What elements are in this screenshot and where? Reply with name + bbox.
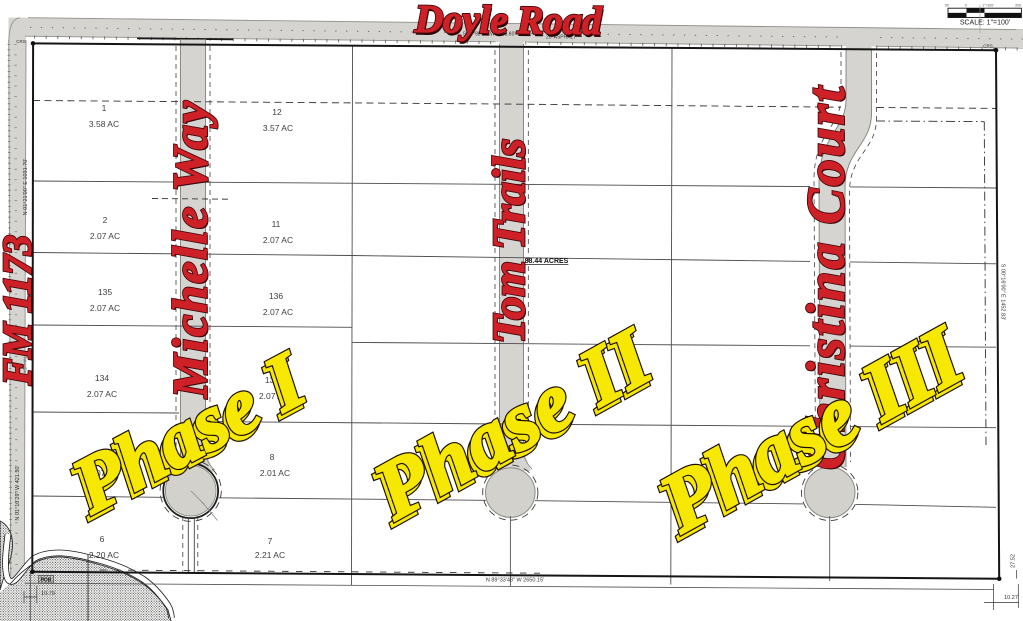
svg-text:3.57 AC: 3.57 AC <box>263 123 293 133</box>
svg-text:FM 1173: FM 1173 <box>0 235 40 386</box>
svg-text:2.20 AC: 2.20 AC <box>89 550 119 560</box>
svg-text:3.58 AC: 3.58 AC <box>89 119 119 129</box>
svg-text:134: 134 <box>95 373 109 383</box>
svg-text:136: 136 <box>269 291 283 301</box>
svg-text:2.07 AC: 2.07 AC <box>90 303 120 313</box>
svg-text:CRS: CRS <box>16 39 26 44</box>
svg-text:N 01°10'29" W 421.50': N 01°10'29" W 421.50' <box>15 465 21 520</box>
svg-text:Tom Trails: Tom Trails <box>483 139 534 344</box>
svg-text:2.07 AC: 2.07 AC <box>263 235 293 245</box>
svg-text:27.52: 27.52 <box>1011 554 1017 568</box>
svg-text:1"=100': 1"=100' <box>982 4 994 8</box>
svg-text:10.27: 10.27 <box>1004 595 1018 601</box>
svg-text:S 00°16'00" E 1452.83': S 00°16'00" E 1452.83' <box>1000 264 1006 320</box>
svg-text:6: 6 <box>100 534 105 544</box>
svg-text:1: 1 <box>102 103 107 113</box>
svg-text:SCALE: 1"=100': SCALE: 1"=100' <box>960 20 1010 27</box>
svg-text:12: 12 <box>272 107 282 117</box>
svg-text:11: 11 <box>272 219 281 229</box>
svg-text:2.07 AC: 2.07 AC <box>90 231 120 241</box>
svg-text:2.01 AC: 2.01 AC <box>260 468 290 478</box>
svg-text:50: 50 <box>945 4 949 8</box>
svg-text:2: 2 <box>103 215 108 225</box>
svg-text:2.07 AC: 2.07 AC <box>263 307 293 317</box>
svg-text:0: 0 <box>965 4 967 8</box>
svg-text:Doyle Road: Doyle Road <box>414 0 604 43</box>
svg-text:10.79: 10.79 <box>41 591 55 597</box>
svg-text:8: 8 <box>270 452 275 462</box>
svg-text:Michelle Way: Michelle Way <box>163 99 218 398</box>
svg-text:7: 7 <box>268 536 273 546</box>
svg-text:N 01°21'00" E 1031.70': N 01°21'00" E 1031.70' <box>23 159 29 216</box>
svg-text:N 89°33'48" W 2650.15': N 89°33'48" W 2650.15' <box>486 578 544 584</box>
svg-text:135: 135 <box>98 287 112 297</box>
svg-text:2.07 AC: 2.07 AC <box>87 389 117 399</box>
svg-text:POB: POB <box>41 578 52 584</box>
svg-text:2.21 AC: 2.21 AC <box>255 550 285 560</box>
svg-text:CRS: CRS <box>983 44 993 49</box>
svg-text:200: 200 <box>1015 4 1021 8</box>
